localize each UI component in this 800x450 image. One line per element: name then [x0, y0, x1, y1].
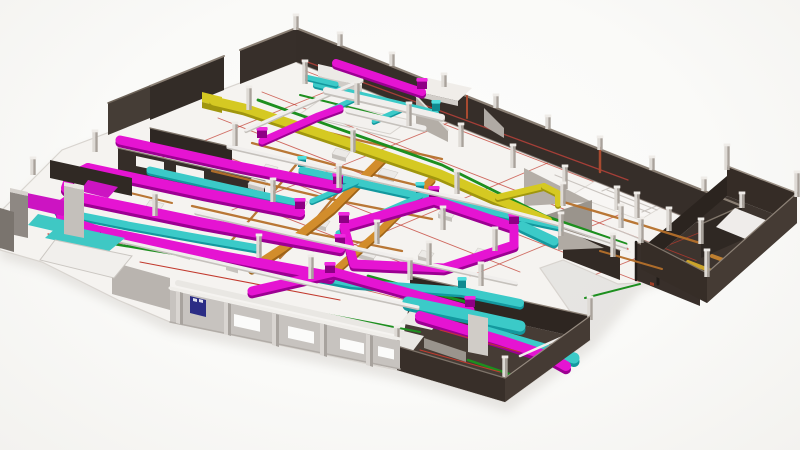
scene-root [0, 14, 800, 413]
bim-3d-model [0, 0, 800, 450]
bim-viewport[interactable] [0, 0, 800, 450]
